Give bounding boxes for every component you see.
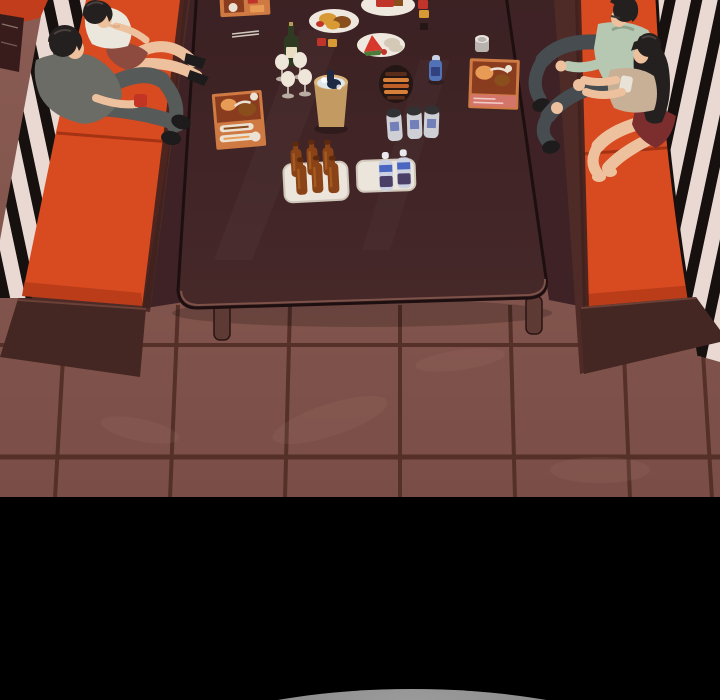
right-man-arm <box>568 62 604 67</box>
menu-card-top <box>219 0 270 17</box>
right-man-hand <box>556 61 567 72</box>
joined-hands <box>573 79 585 91</box>
right-woman-arm <box>584 80 616 82</box>
right-man-hand <box>551 102 563 114</box>
menu-card-left <box>212 90 267 150</box>
beer-cans <box>386 105 440 141</box>
glass-cup <box>475 35 489 52</box>
scene-canvas <box>0 0 720 700</box>
table-leg-right <box>526 296 542 334</box>
comic-panel <box>0 0 720 700</box>
red-cup <box>134 94 147 107</box>
tabletop-grill <box>379 65 413 103</box>
ice-bucket <box>314 70 348 134</box>
chicken-plate <box>309 9 359 33</box>
black-gutter <box>0 497 720 700</box>
fruit-plate <box>357 33 405 57</box>
right-woman-foot <box>603 167 617 177</box>
menu-card-right <box>468 58 520 110</box>
